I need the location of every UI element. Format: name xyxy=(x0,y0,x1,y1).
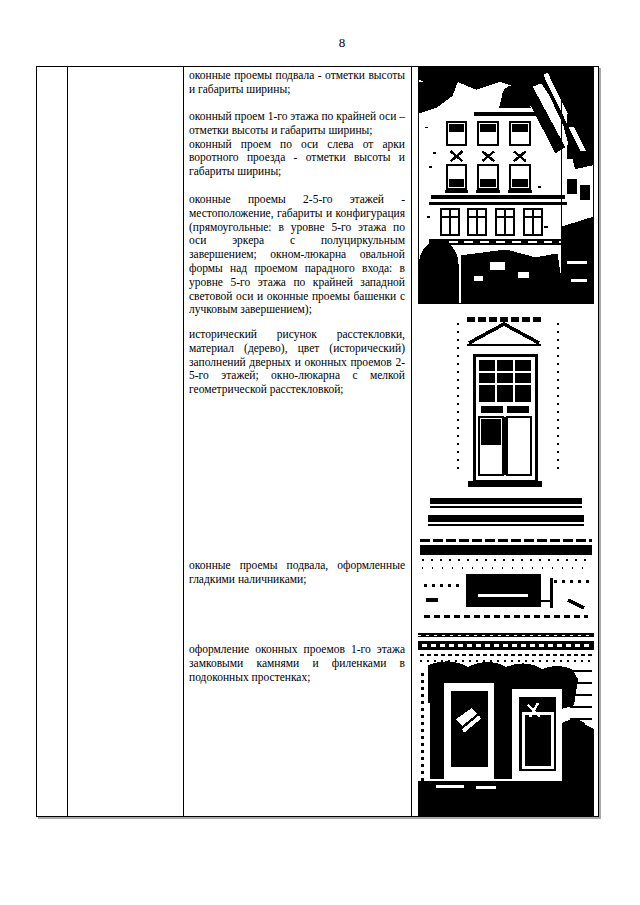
window-detail-image xyxy=(418,315,594,527)
paragraph-upper-floor-windows: оконные проемы 2-5-го этажей - местополо… xyxy=(189,193,405,317)
paragraph-gateway-window: оконный проем по оси слева от арки ворот… xyxy=(189,138,405,179)
table-cell-description: оконные проемы подвала - отметки высоты … xyxy=(184,67,411,816)
monument-features-table: оконные проемы подвала - отметки высоты … xyxy=(36,66,599,817)
basement-window-photo xyxy=(418,538,594,623)
page-number: 8 xyxy=(22,35,640,51)
paragraph-first-floor-window: оконный проем 1-го этажа по крайней оси … xyxy=(189,110,405,138)
table-column-divider xyxy=(67,67,68,816)
table-cell-photos xyxy=(412,67,600,816)
basement-window-image xyxy=(418,538,594,623)
paragraph-historic-glazing: исторический рисунок расстекловки, матер… xyxy=(189,328,405,397)
paragraph-basement-window-openings: оконные проемы подвала - отметки высоты … xyxy=(189,69,405,97)
first-floor-windows-image xyxy=(418,633,594,816)
paragraph-basement-architraves: оконные проемы подвала, оформленные глад… xyxy=(189,559,405,587)
paragraph-keystones-panels: оформление оконных проемов 1-го этажа за… xyxy=(189,643,405,684)
building-facade-photo xyxy=(418,67,594,304)
building-facade-image xyxy=(419,68,593,303)
paragraph-group-first-floor: оконный проем 1-го этажа по крайней оси … xyxy=(189,110,405,179)
window-detail-photo xyxy=(418,315,594,527)
first-floor-windows-photo xyxy=(418,633,594,816)
scanned-document-page: 8 оконные проемы подвала - отметки высот… xyxy=(0,0,640,905)
